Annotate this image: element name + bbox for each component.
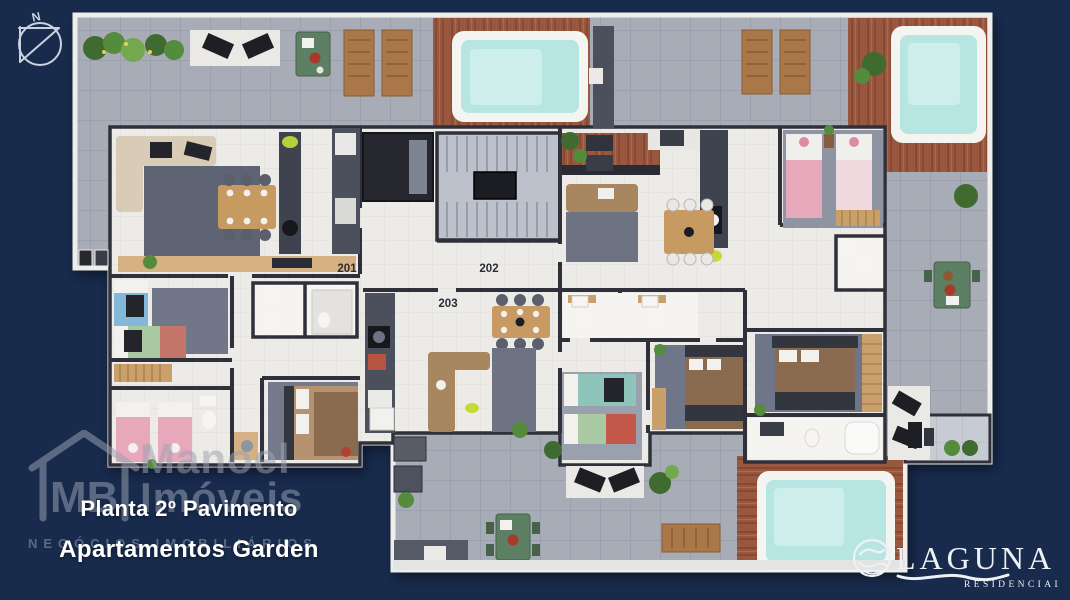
pillow <box>801 350 819 362</box>
bed-frame <box>685 405 743 421</box>
fridge <box>370 408 394 430</box>
laundry-items <box>908 422 922 448</box>
toilet <box>318 312 330 328</box>
cooktop <box>282 220 298 236</box>
lounge-mat-top <box>190 30 280 66</box>
pool-top-middle <box>452 31 588 122</box>
blanket <box>160 326 186 358</box>
sink <box>572 296 588 307</box>
bed-frame <box>775 392 855 410</box>
plant <box>561 132 579 150</box>
sofa-throw <box>598 188 614 199</box>
sofa-chaise <box>428 352 455 432</box>
pillow <box>689 359 703 370</box>
sofa-chaise <box>116 136 143 212</box>
laguna-brand-logo: LAGUNA RESIDENCIAL <box>846 528 1058 592</box>
caption-line-2: Apartamentos Garden <box>0 536 378 564</box>
centerpiece <box>516 318 525 327</box>
counter-box <box>589 68 603 84</box>
pillow <box>116 402 150 417</box>
pillow <box>114 280 148 293</box>
parapet <box>393 560 905 570</box>
bush <box>944 440 960 456</box>
sink <box>842 242 856 252</box>
toilet <box>805 429 819 447</box>
pool-top-right <box>891 26 986 143</box>
lounge-mat-bottom <box>566 466 644 498</box>
bathtub <box>845 422 879 454</box>
bush <box>512 422 528 438</box>
closet <box>79 250 92 266</box>
compass-diagonal <box>20 28 59 62</box>
bush <box>665 465 679 479</box>
centerpiece <box>684 227 694 237</box>
vanity <box>760 422 784 436</box>
sink <box>335 133 356 155</box>
unit-label-201: 201 <box>337 263 357 275</box>
pillow <box>707 359 721 370</box>
technical-room-door <box>409 140 427 194</box>
plant <box>143 255 157 269</box>
nightstand <box>824 134 834 148</box>
sofa-pillow <box>436 380 446 390</box>
wardrobe <box>862 334 882 412</box>
sun-lounger-bottom <box>662 524 720 552</box>
headboard <box>772 336 858 348</box>
blanket-red <box>606 414 636 444</box>
unit-label-203: 203 <box>438 298 457 310</box>
plant <box>754 404 766 416</box>
cooktop-detail <box>373 331 385 343</box>
rug <box>566 212 638 262</box>
bush <box>544 441 562 459</box>
pillow <box>158 402 192 417</box>
toilet <box>856 254 868 270</box>
plant <box>654 344 666 356</box>
bush <box>962 440 978 456</box>
outdoor-table-top <box>296 32 330 76</box>
pillow <box>564 414 578 444</box>
headboard <box>284 386 294 460</box>
plant <box>147 459 157 469</box>
fruit-bowl <box>282 136 298 148</box>
wardrobe <box>652 388 666 430</box>
blanket-dark <box>124 330 142 352</box>
headboard <box>685 345 743 357</box>
sofa-cushion <box>150 142 172 158</box>
plant <box>824 125 834 135</box>
toilet <box>202 411 216 429</box>
caption-line-1: Planta 2º Pavimento <box>0 496 378 522</box>
compass-north-label: N <box>30 9 41 24</box>
sink <box>200 396 216 406</box>
hood <box>660 130 684 146</box>
storage-box <box>586 135 613 151</box>
north-compass: N <box>6 6 80 76</box>
rug <box>492 348 536 432</box>
toilet <box>580 314 592 330</box>
unit-label-202: 202 <box>479 263 498 275</box>
chair <box>241 440 253 452</box>
sink <box>642 296 658 307</box>
sink <box>266 290 278 302</box>
pillow <box>564 374 578 406</box>
toilet <box>648 314 660 330</box>
bush <box>954 184 978 208</box>
bed-detail <box>849 137 859 147</box>
pouf <box>465 403 479 413</box>
wardrobe <box>114 364 172 382</box>
bed-detail <box>170 443 180 453</box>
pillow <box>296 414 309 434</box>
pillow <box>296 389 309 409</box>
floor-plan-page: 201 202 203 N MB Manoel Imóveis NEGÓC <box>0 0 1070 600</box>
closet <box>95 250 108 266</box>
tv <box>272 258 312 268</box>
toilet <box>264 314 276 330</box>
blanket-dark <box>604 378 624 402</box>
blanket <box>314 392 358 456</box>
plant-red <box>341 447 351 457</box>
shelf-red <box>368 354 386 370</box>
bush <box>854 68 870 84</box>
pillow <box>779 350 797 362</box>
plan-caption: Planta 2º Pavimento Apartamentos Garden <box>0 496 378 564</box>
counter-appliance <box>335 198 356 224</box>
plant <box>573 149 587 163</box>
shower <box>312 290 352 334</box>
storage-box <box>586 155 613 171</box>
brand-name: LAGUNA <box>896 540 1055 576</box>
laundry-items <box>924 428 934 446</box>
wave-emblem-icon <box>854 540 890 576</box>
bed-detail <box>128 443 138 453</box>
blanket <box>126 295 144 317</box>
brand-subtitle: RESIDENCIAL <box>964 580 1058 590</box>
bed-detail <box>799 137 809 147</box>
elevator <box>474 172 516 199</box>
sink <box>368 390 392 408</box>
